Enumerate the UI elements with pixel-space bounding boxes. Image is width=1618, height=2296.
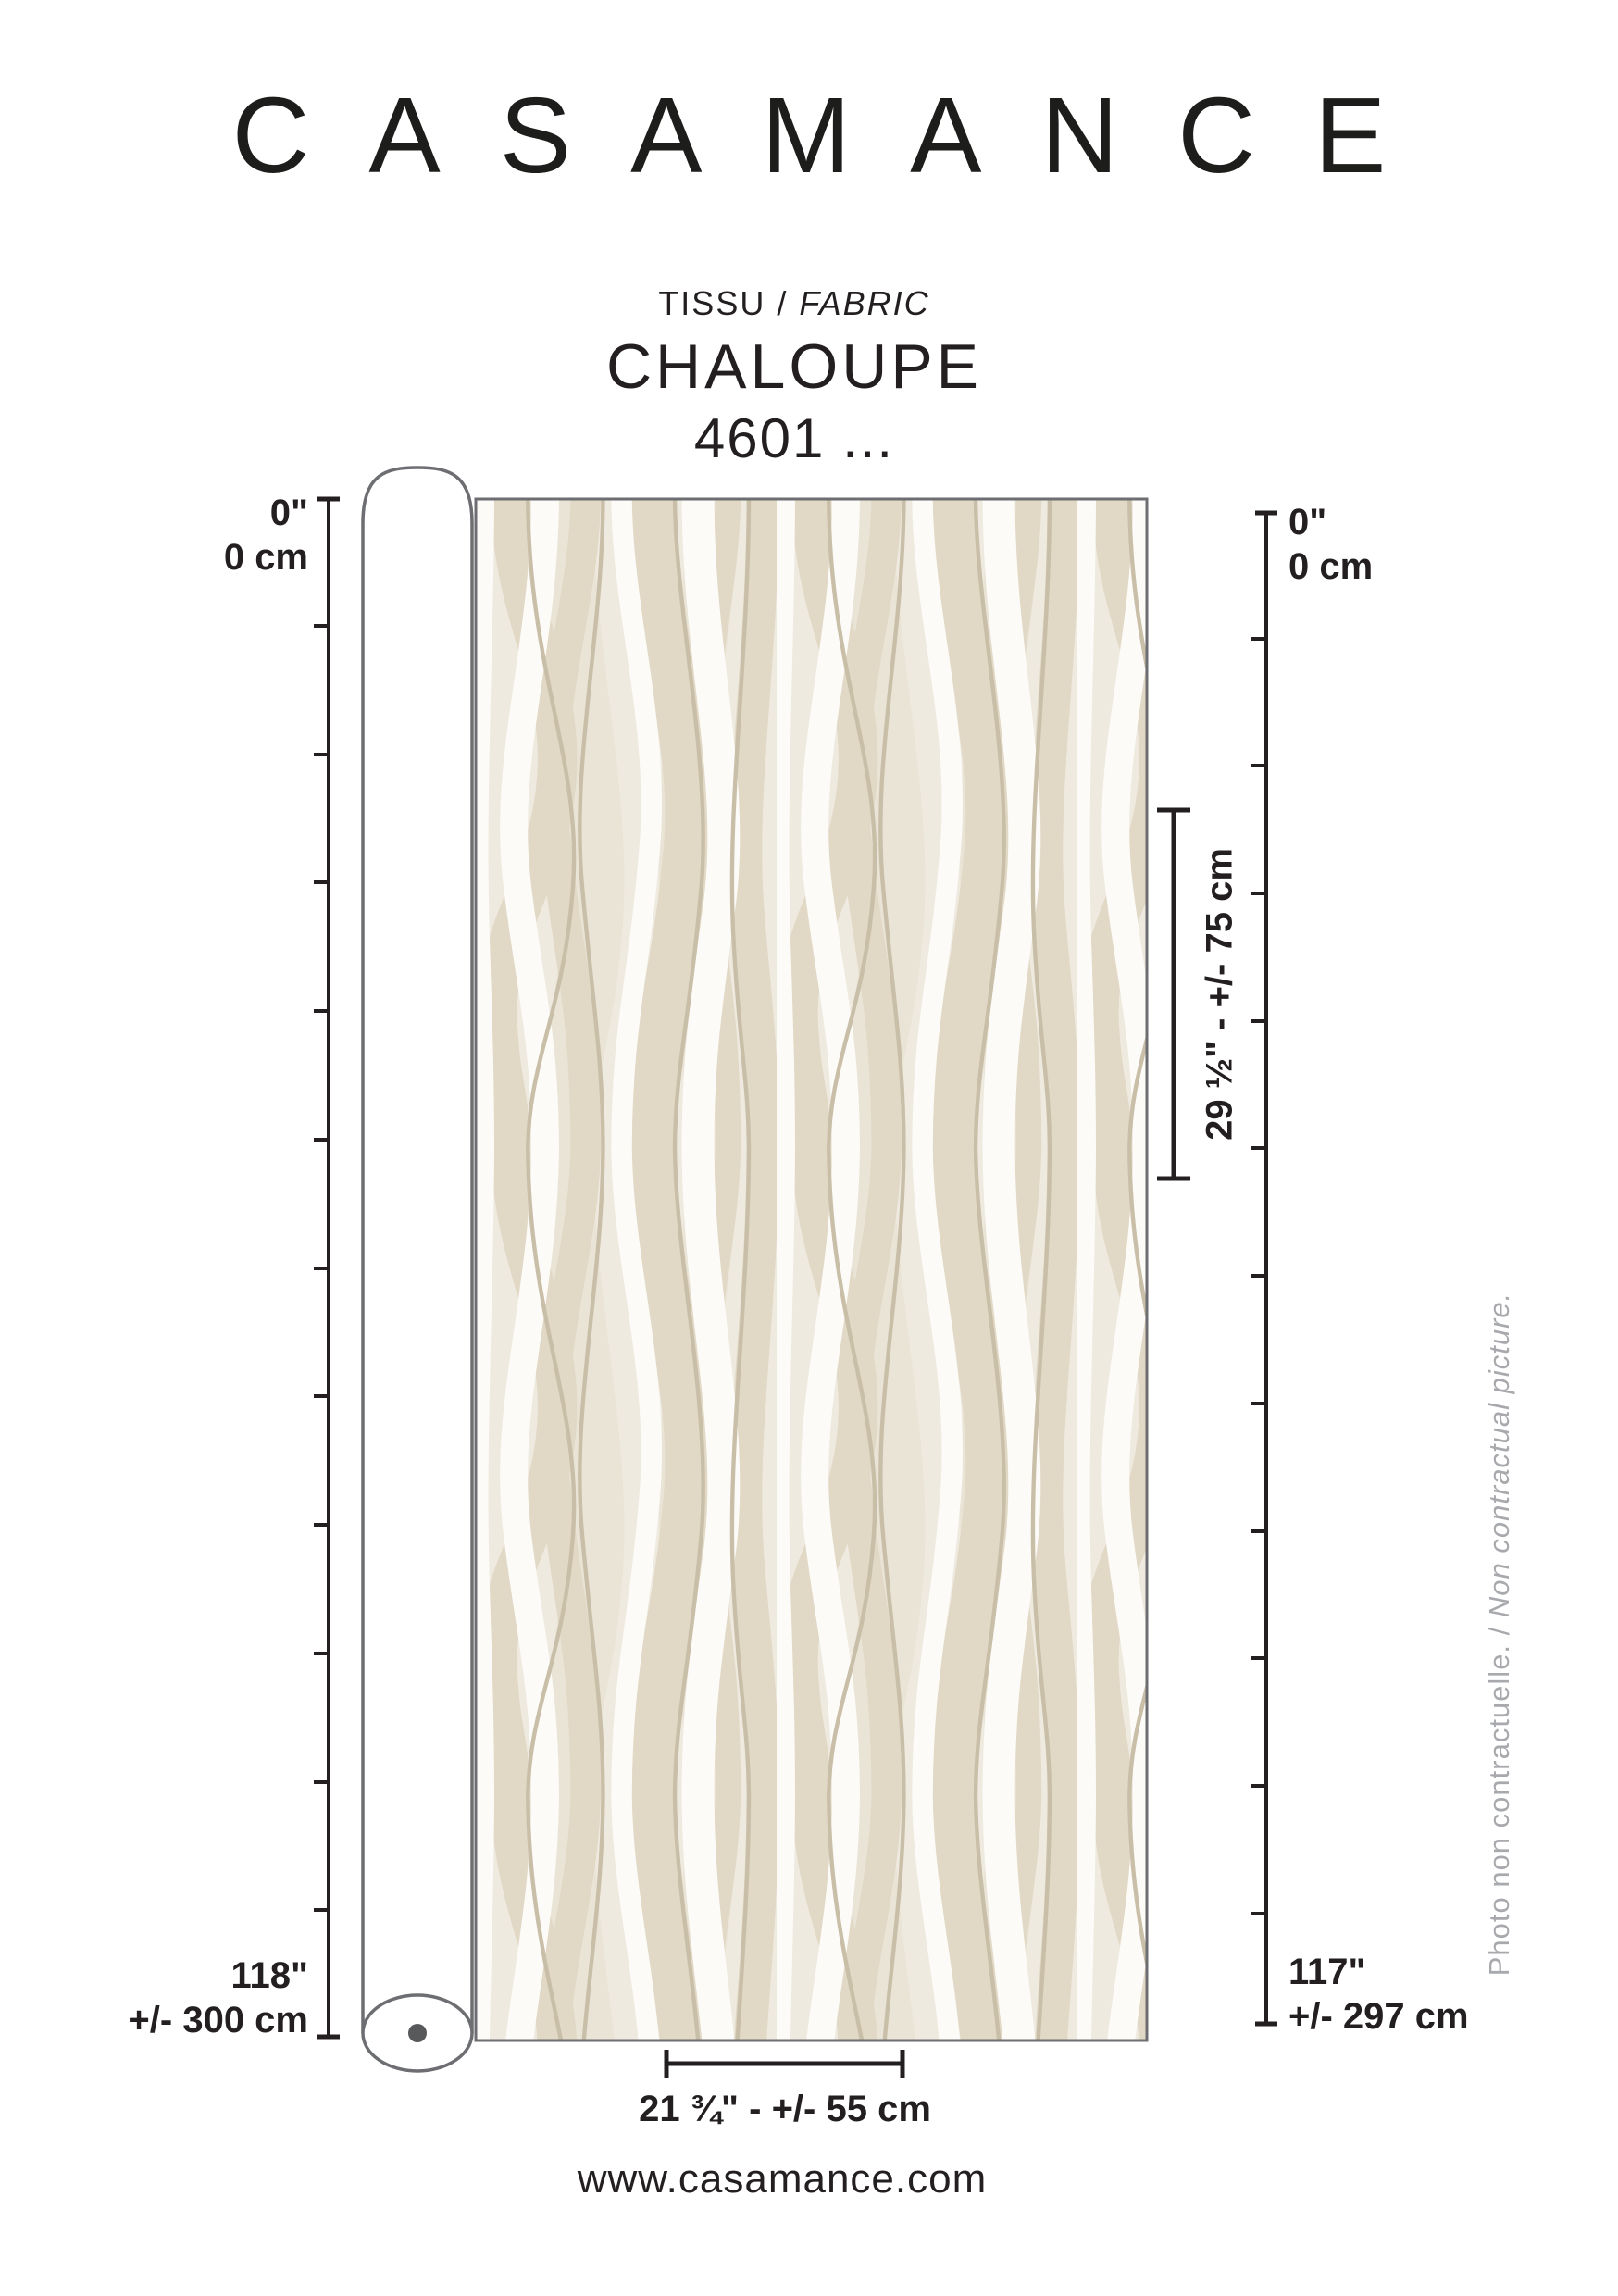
left-ruler-zero-inches: 0" xyxy=(86,494,308,531)
left-ruler-total-inches: 118" xyxy=(86,1957,308,1994)
product-name: CHALOUPE xyxy=(0,335,1588,398)
note-en: Non contractual picture. xyxy=(1483,1292,1515,1617)
repeat-measure-bar xyxy=(1157,810,1190,1179)
note-separator: / xyxy=(1483,1617,1515,1644)
spec-sheet-page: { "colors": { "text": "#231f20", "outlin… xyxy=(0,0,1618,2296)
right-ruler-total-inches: 117" xyxy=(1288,1953,1566,1990)
roll-core-dot xyxy=(408,2024,427,2042)
width-measure-label: 21 ¾" - +/- 55 cm xyxy=(554,2090,1016,2128)
fabric-swatch xyxy=(476,499,1147,2040)
brand-logo: CASAMANCE xyxy=(0,81,1618,189)
non-contractual-note: Photo non contractuelle. / Non contractu… xyxy=(1475,1324,1524,1944)
left-ruler-total-cm: +/- 300 cm xyxy=(86,2002,308,2039)
type-separator: / xyxy=(765,284,799,322)
type-label-en: FABRIC xyxy=(799,284,929,322)
website-link[interactable]: www.casamance.com xyxy=(0,2159,1564,2200)
note-fr: Photo non contractuelle. xyxy=(1483,1644,1515,1976)
left-ruler-zero-cm: 0 cm xyxy=(86,539,308,576)
product-reference: 4601 ... xyxy=(0,411,1588,467)
width-measure-bar xyxy=(666,2050,902,2078)
right-ruler-total-cm: +/- 297 cm xyxy=(1288,1998,1566,2035)
right-ruler xyxy=(1251,511,1277,2026)
type-label-fr: TISSU xyxy=(658,284,765,322)
left-ruler xyxy=(314,497,340,2039)
product-type-line: TISSU / FABRIC xyxy=(0,287,1588,320)
vertical-repeat-label: 29 ½" - +/- 75 cm xyxy=(1196,808,1244,1180)
fabric-roll xyxy=(363,468,472,2071)
right-ruler-zero-cm: 0 cm xyxy=(1288,548,1566,585)
right-ruler-zero-inches: 0" xyxy=(1288,504,1566,541)
